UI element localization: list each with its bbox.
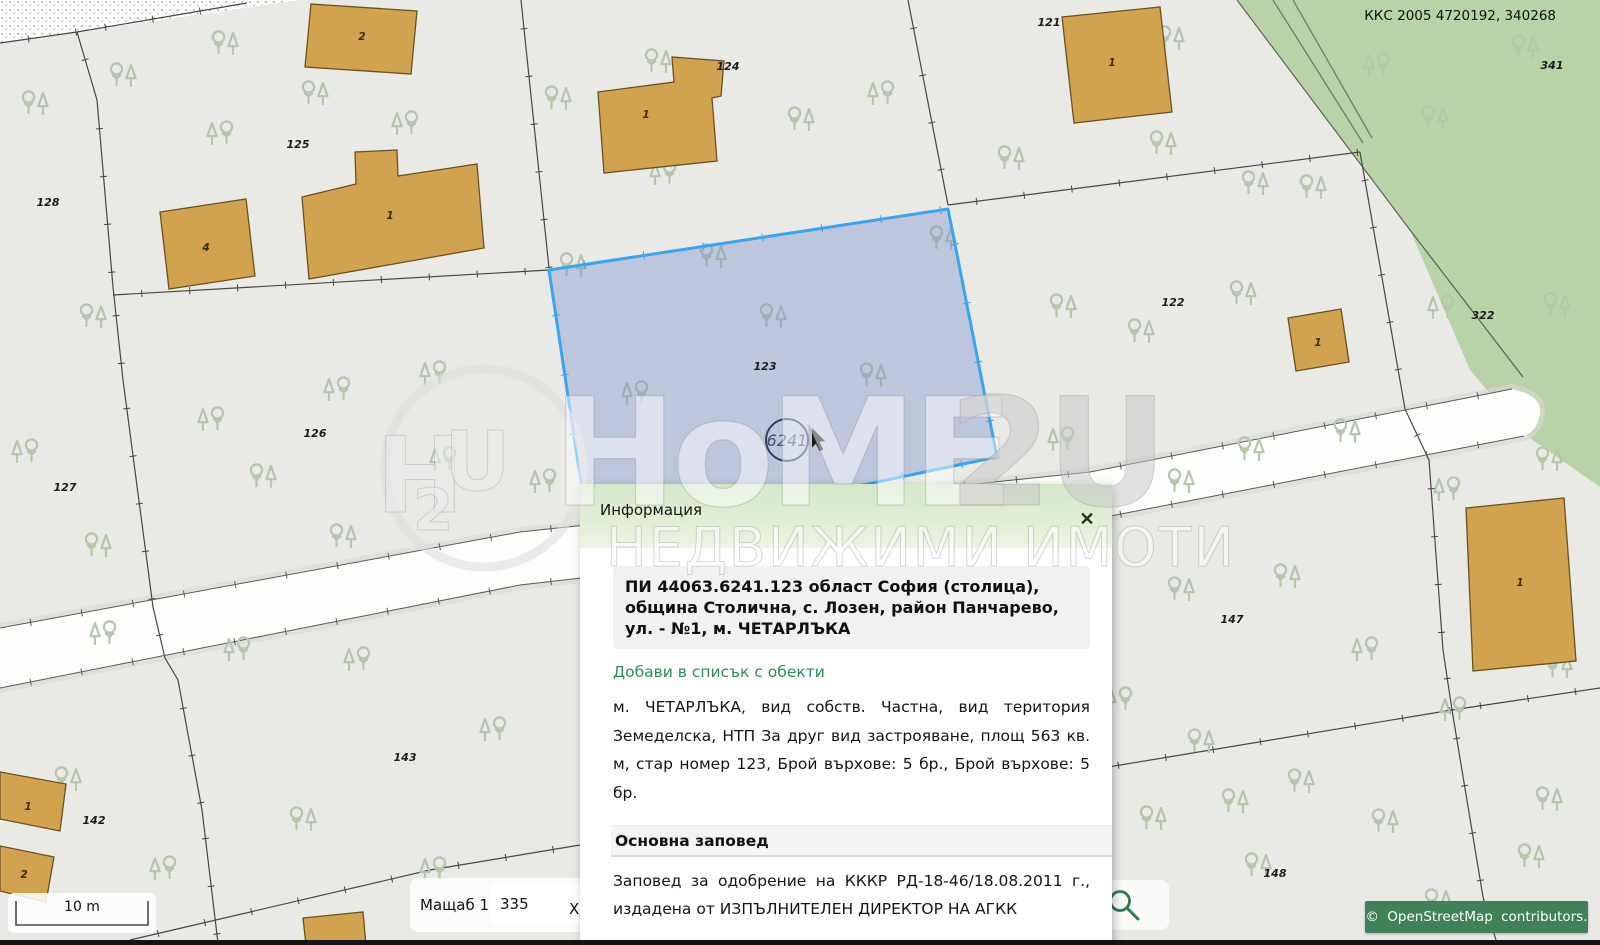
parcel-description: м. ЧЕТАРЛЪКА, вид собств. Частна, вид те… [613, 693, 1090, 807]
osm-attribution[interactable]: © OpenStreetMap contributors. [1365, 901, 1588, 933]
bottom-edge-bar [0, 940, 1600, 945]
section-title: Основна заповед [615, 832, 769, 850]
coordinate-x-label: X [569, 900, 579, 918]
popup-body: ПИ 44063.6241.123 област София (столица)… [580, 566, 1112, 923]
info-popup: Информация ✕ ПИ 44063.6241.123 област Со… [580, 484, 1112, 945]
info-popup-header: Информация ✕ [580, 484, 1112, 548]
parcel-circle-number: 6241 [767, 431, 808, 450]
parcel-number-label: 143 [394, 751, 417, 764]
crs-coordinates-label: ККС 2005 4720192, 340268 [1364, 8, 1556, 24]
building-number-label: 1 [1108, 57, 1115, 69]
parcel-number-label: 127 [54, 481, 77, 494]
parcel-number-label: 128 [37, 196, 60, 209]
parcel-address: ПИ 44063.6241.123 област София (столица)… [613, 566, 1090, 649]
building-number-label: 1 [642, 109, 649, 121]
order-text: Заповед за одобрение на КККР РД-18-46/18… [613, 867, 1090, 923]
building-number-label: 1 [386, 210, 393, 222]
parcel-number-label: 124 [717, 60, 740, 73]
parcel-number-label: 121 [1038, 16, 1061, 29]
close-icon[interactable]: ✕ [1076, 508, 1098, 530]
building-number-label: 1 [1516, 577, 1523, 589]
building-number-label: 2 [358, 31, 365, 43]
section-band: Основна заповед [611, 825, 1112, 857]
building-number-label: 2 [20, 869, 27, 881]
parcel-number-label: 322 [1472, 309, 1495, 322]
building-number-label: 4 [201, 242, 209, 254]
scalebar: 10 m [8, 893, 156, 933]
scale-label: Мащаб 1: [420, 896, 494, 914]
parcel-number-label: 122 [1162, 296, 1185, 309]
parcel-number-label: 125 [287, 138, 310, 151]
building-number-label: 1 [24, 801, 31, 813]
scale-control: Мащаб 1: [410, 878, 586, 932]
popup-title: Информация [600, 501, 702, 519]
cadastre-map-app: 1281251261271241211221233223411471481431… [0, 0, 1600, 945]
scalebar-label: 10 m [8, 899, 156, 915]
parcel-number-label: 148 [1264, 867, 1287, 880]
parcel-number-label: 142 [83, 814, 106, 827]
building-number-label: 1 [1314, 337, 1321, 349]
parcel-number-label: 341 [1541, 59, 1564, 72]
parcel-number-label: 123 [754, 360, 777, 373]
add-to-list-link[interactable]: Добави в списък с обекти [613, 663, 1090, 681]
parcel-number-label: 147 [1221, 613, 1244, 626]
parcel-number-label: 126 [304, 427, 327, 440]
